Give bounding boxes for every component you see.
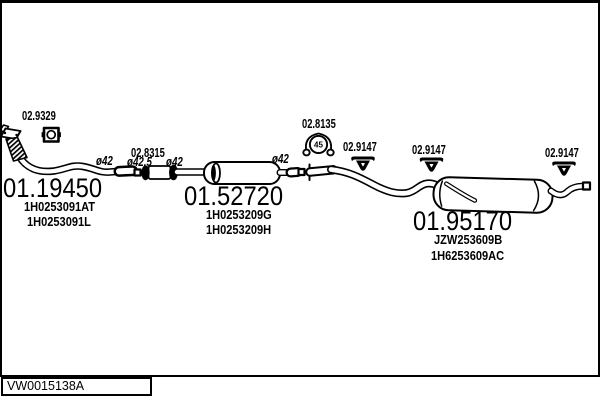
oem-rear-muffler-1: JZW253609B: [434, 233, 502, 246]
catalog-code: VW0015138A: [3, 379, 150, 393]
part-ref-hanger-2: 02.9147: [412, 143, 446, 156]
diameter-label-coupling: ø42.5: [127, 155, 152, 168]
oem-front-pipe-1: 1H0253091AT: [24, 200, 95, 213]
part-ref-hanger-1: 02.9147: [343, 140, 377, 153]
oem-rear-muffler-2: 1H6253609AC: [431, 249, 504, 262]
diameter-label-inlet: ø42: [166, 155, 183, 168]
part-number-rear-muffler: 01.95170: [413, 208, 512, 235]
part-number-front-pipe: 01.19450: [3, 175, 102, 202]
oem-front-pipe-2: 1H0253091L: [27, 215, 91, 228]
oem-centre-muffler-2: 1H0253209H: [206, 223, 271, 236]
part-ref-hanger-3: 02.9147: [545, 146, 579, 159]
catalog-diagram-page: 45 02.9329 02.8315 02.8135 02.9147 02.91…: [0, 0, 600, 400]
catalog-code-box: VW0015138A: [1, 377, 152, 396]
part-ref-clamp: 02.8135: [302, 117, 336, 130]
part-number-centre-muffler: 01.52720: [184, 183, 283, 210]
part-ref-gasket: 02.9329: [22, 109, 56, 122]
diameter-label-front: ø42: [96, 154, 113, 167]
oem-centre-muffler-1: 1H0253209G: [206, 208, 272, 221]
diameter-label-outlet: ø42: [272, 152, 289, 165]
